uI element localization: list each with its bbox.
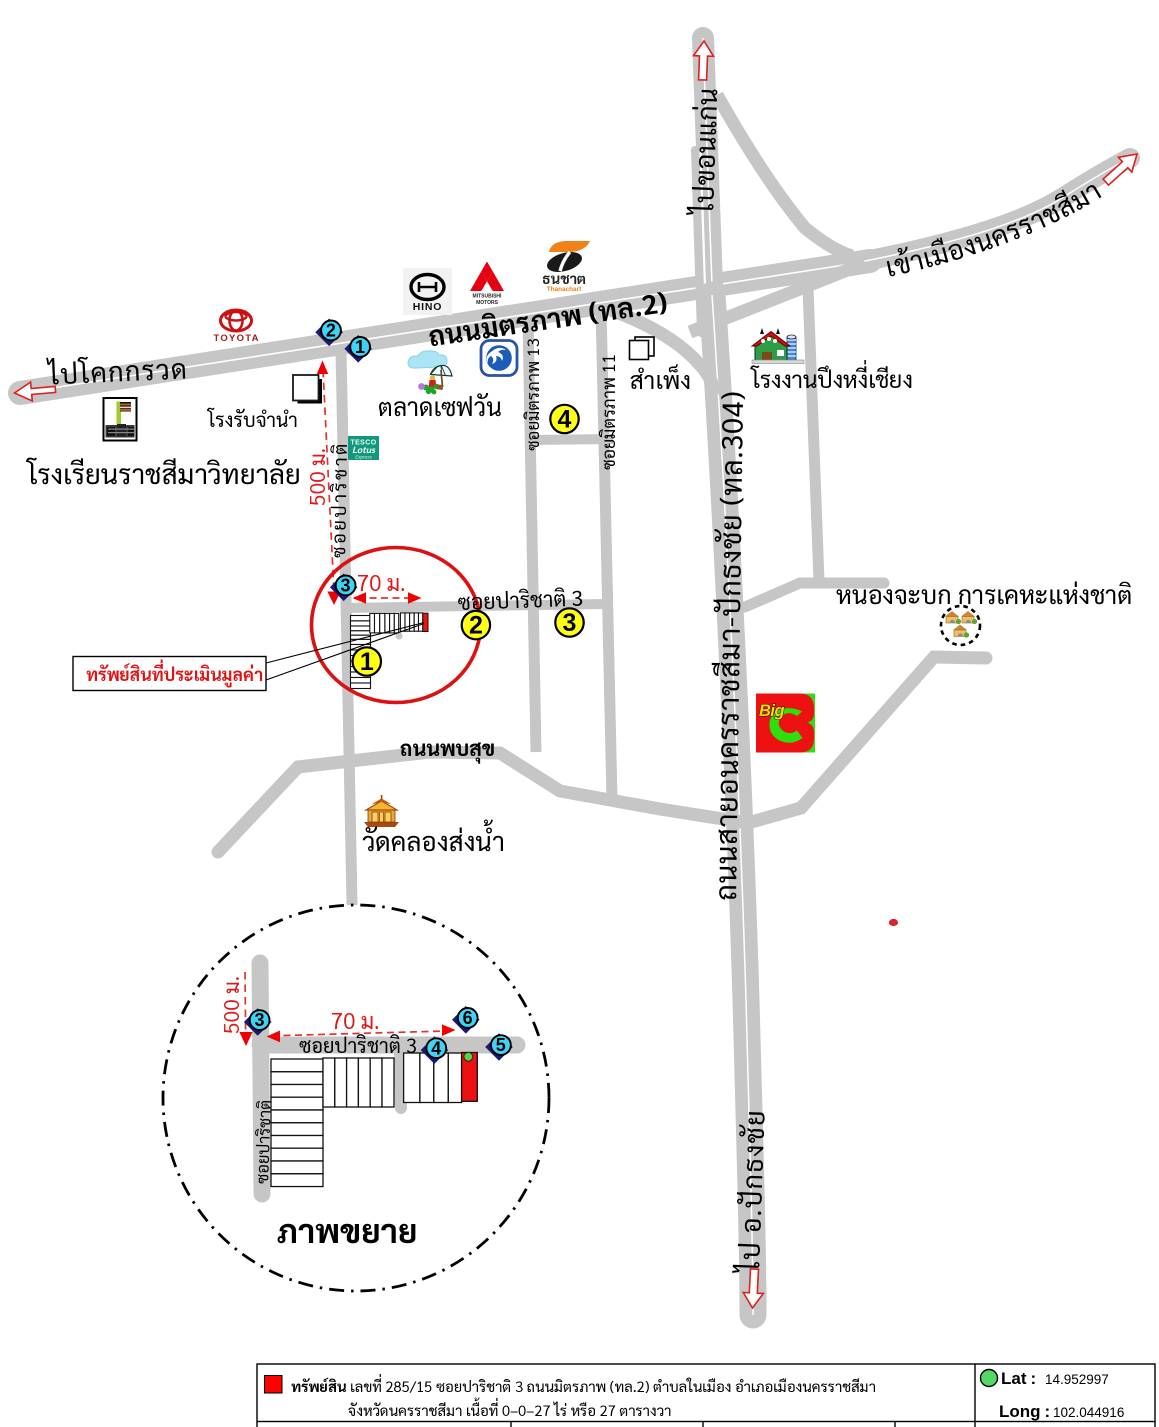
svg-text:70 ม.: 70 ม.	[357, 569, 406, 597]
svg-text:6: 6	[463, 1008, 473, 1028]
svg-text:Express: Express	[355, 455, 372, 460]
svg-text:ซอยปาริชาติ 3: ซอยปาริชาติ 3	[299, 1032, 417, 1058]
svg-text:หนองจะบก การเคหะแห่งชาติ: หนองจะบก การเคหะแห่งชาติ	[836, 577, 1133, 610]
svg-text:2: 2	[469, 612, 483, 640]
svg-text:ไปขอนแก่น: ไปขอนแก่น	[685, 87, 724, 216]
svg-text:2: 2	[326, 321, 336, 341]
svg-text:14.952997: 14.952997	[1045, 1372, 1109, 1387]
svg-text:จังหวัดนครราชสีมา เนื้อที่ 0–0: จังหวัดนครราชสีมา เนื้อที่ 0–0–27 ไร่ หร…	[348, 1397, 671, 1420]
svg-text:3: 3	[254, 1010, 264, 1030]
svg-text:โรงงานปึงหงี่เชียง: โรงงานปึงหงี่เชียง	[750, 359, 913, 394]
svg-text:500 ม.: 500 ม.	[303, 448, 330, 506]
svg-text:Big: Big	[759, 702, 785, 720]
svg-text:MOTORS: MOTORS	[476, 300, 499, 306]
svg-text:วัดคลองส่งน้ำ: วัดคลองส่งน้ำ	[362, 821, 505, 858]
svg-text:ซอยปาริชาติ: ซอยปาริชาติ	[326, 441, 352, 558]
svg-text:ภาพขยาย: ภาพขยาย	[277, 1207, 418, 1251]
svg-text:ไป อ.ปักธงชัย: ไป อ.ปักธงชัย	[731, 1109, 772, 1275]
svg-text:4: 4	[431, 1038, 441, 1058]
svg-text:Thanachart: Thanachart	[547, 286, 582, 293]
svg-text:3: 3	[340, 576, 350, 596]
svg-text:4: 4	[558, 406, 572, 434]
svg-text:500 ม.: 500 ม.	[217, 976, 244, 1034]
svg-text:3: 3	[563, 609, 577, 637]
svg-text:TOYOTA: TOYOTA	[214, 333, 259, 344]
svg-text:ถนนสายอนครราชสีมา-ปักธงชัย (ทล: ถนนสายอนครราชสีมา-ปักธงชัย (ทล.304)	[705, 390, 750, 901]
svg-text:ซอยปาริชาติ: ซอยปาริชาติ	[250, 1099, 275, 1184]
svg-text:1: 1	[355, 337, 365, 357]
svg-text:102.044916: 102.044916	[1053, 1405, 1124, 1420]
svg-text:70 ม.: 70 ม.	[331, 1007, 380, 1035]
svg-text:MITSUBISHI: MITSUBISHI	[473, 294, 503, 300]
svg-text:ถนนพบสุข: ถนนพบสุข	[400, 734, 495, 763]
svg-text:ตลาดเซฟวัน: ตลาดเซฟวัน	[378, 390, 502, 422]
svg-text:5: 5	[496, 1035, 506, 1055]
svg-text:ซอยมิตรภาพ 11: ซอยมิตรภาพ 11	[597, 354, 620, 470]
svg-text:Lat:: Lat:	[1001, 1369, 1036, 1388]
svg-text:โรงรับจำนำ: โรงรับจำนำ	[207, 406, 298, 432]
svg-text:ทรัพย์สิน เลขที่ 285/15 ซอยปาร: ทรัพย์สิน เลขที่ 285/15 ซอยปาริชาติ 3 ถน…	[291, 1373, 876, 1396]
svg-text:HINO: HINO	[413, 301, 442, 313]
svg-text:1: 1	[360, 648, 374, 676]
svg-text:ซอยมิตรภาพ 13: ซอยมิตรภาพ 13	[521, 338, 543, 451]
svg-text:โรงเรียนราชสีมาวิทยาลัย: โรงเรียนราชสีมาวิทยาลัย	[26, 456, 301, 491]
svg-text:ไปโคกกรวด: ไปโคกกรวด	[46, 350, 189, 391]
svg-text:ทรัพย์สินที่ประเมินมูลค่า: ทรัพย์สินที่ประเมินมูลค่า	[86, 659, 263, 688]
svg-text:สำเพ็ง: สำเพ็ง	[630, 363, 691, 395]
